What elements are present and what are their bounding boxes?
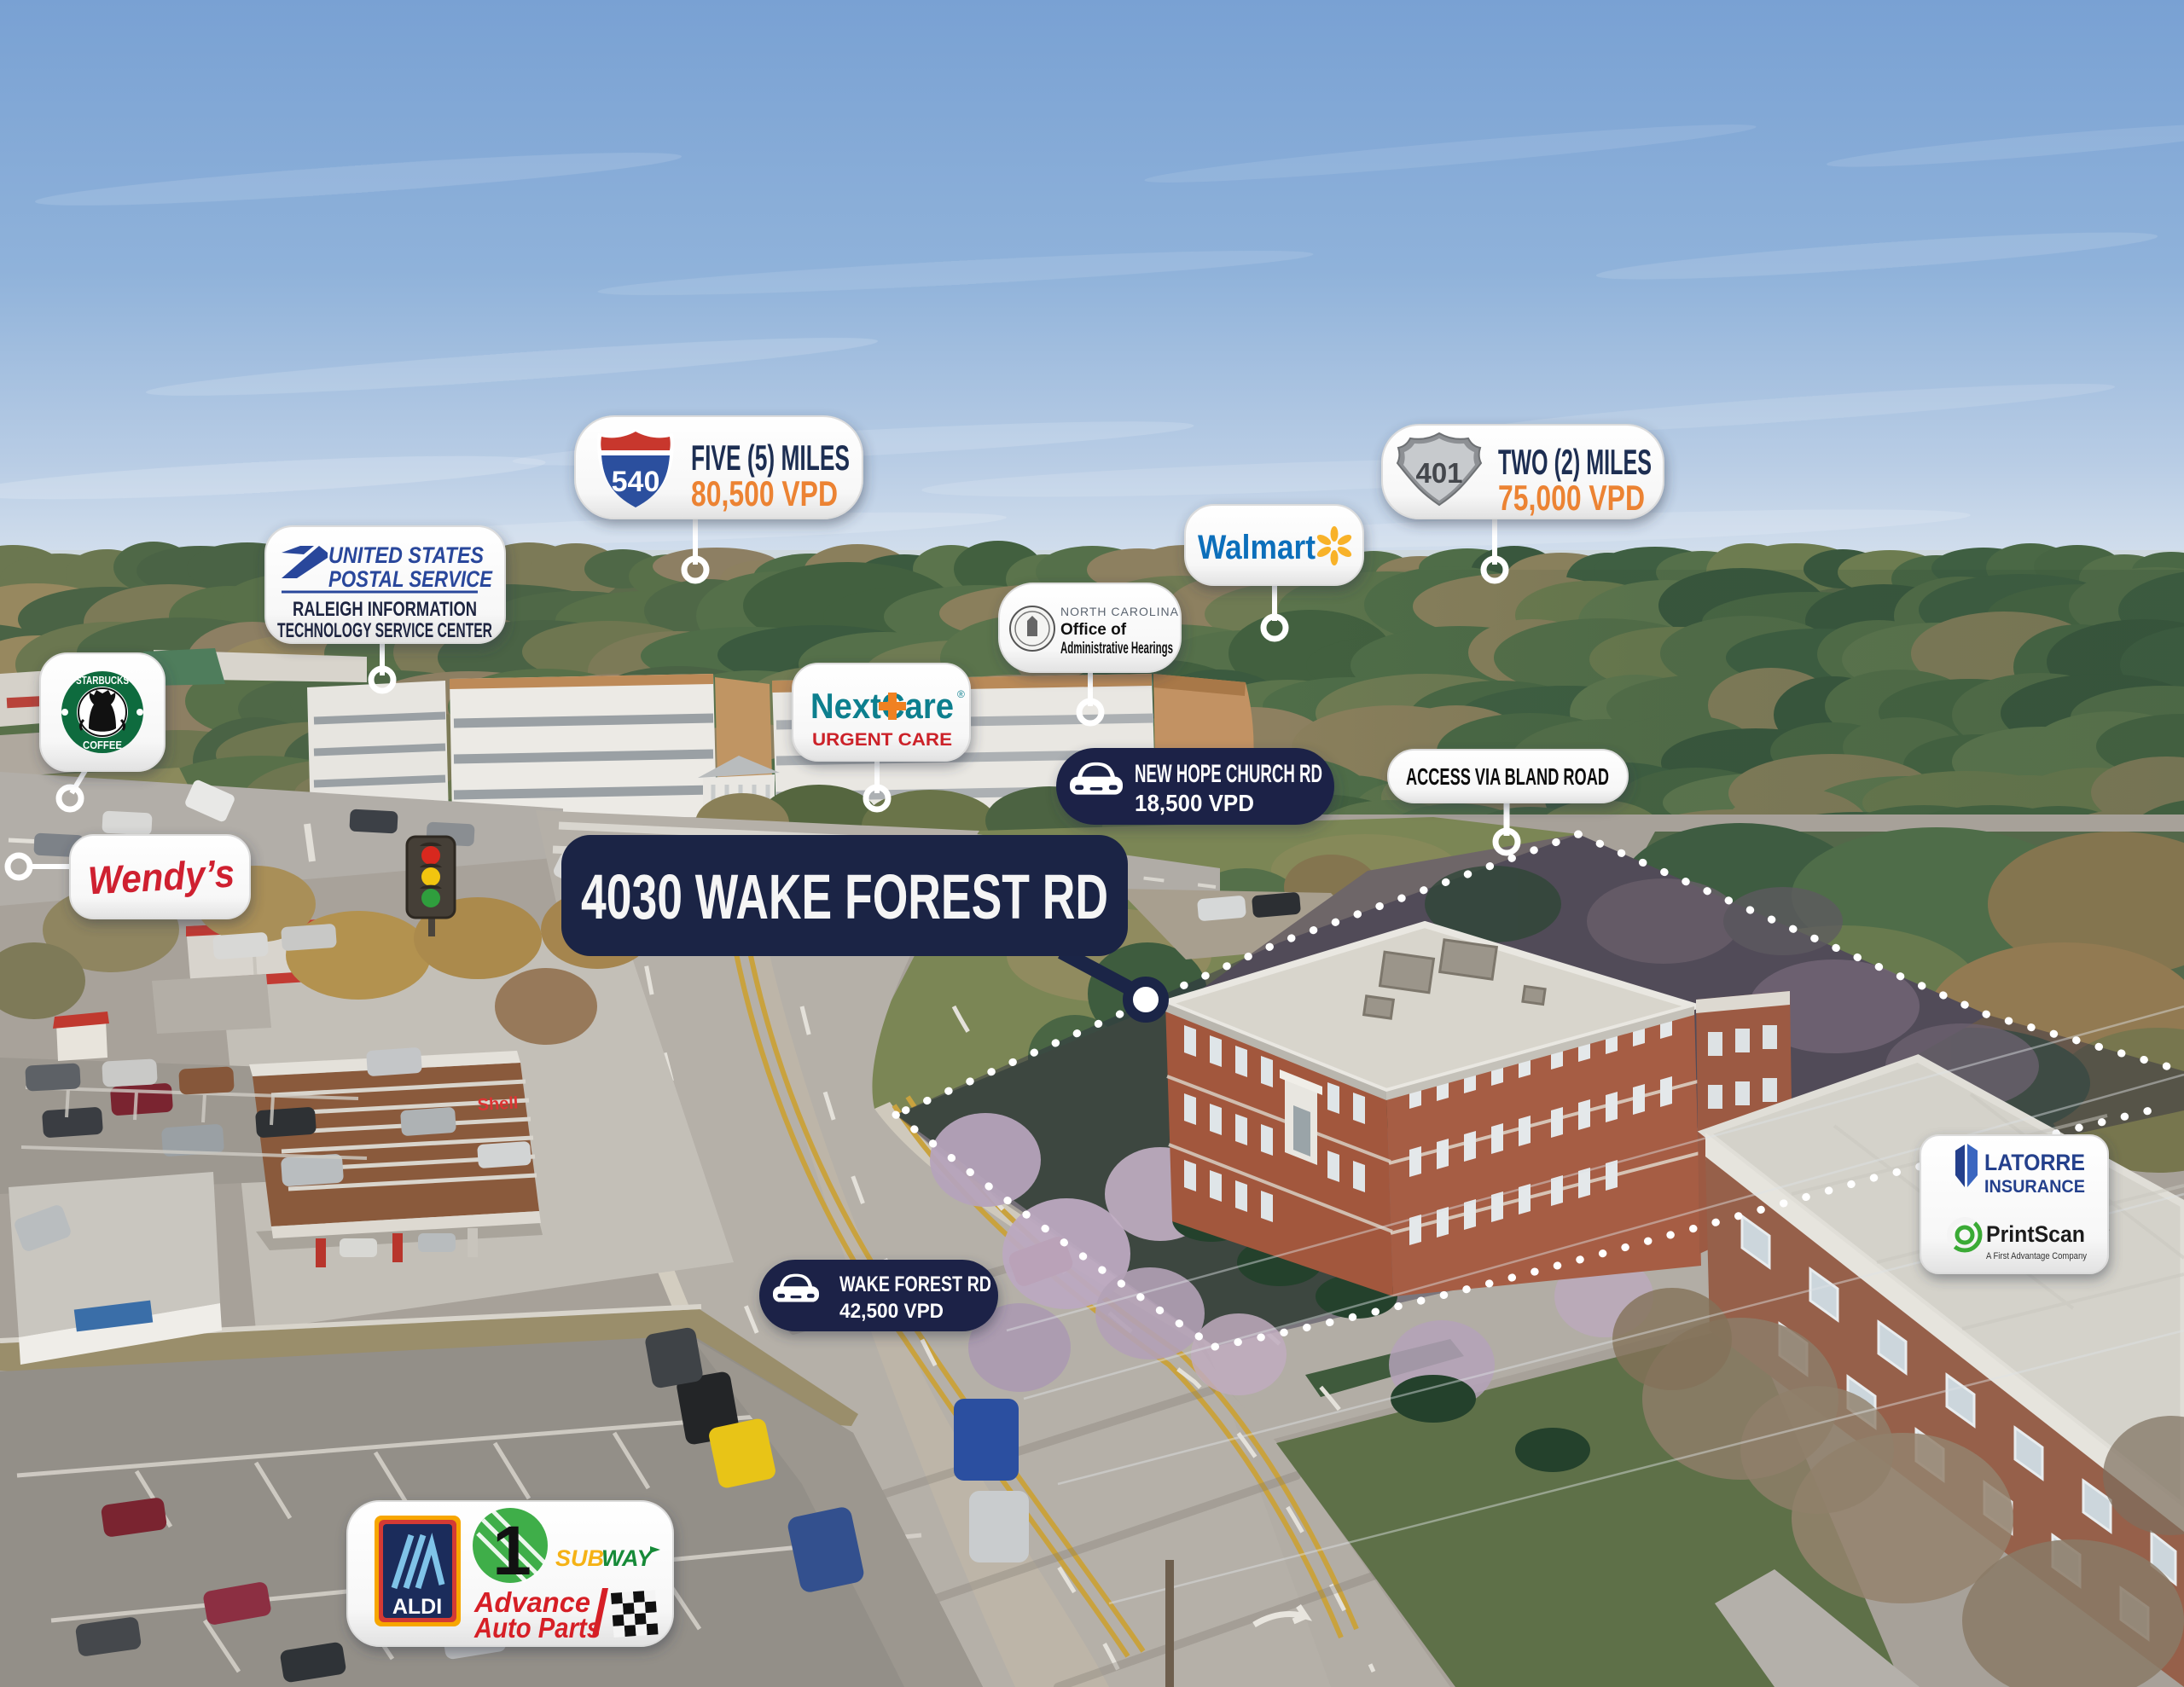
- svg-text:Shell: Shell: [477, 1094, 519, 1115]
- svg-text:42,500 VPD: 42,500 VPD: [839, 1300, 944, 1323]
- svg-text:PrintScan: PrintScan: [1986, 1221, 2085, 1247]
- svg-text:®: ®: [957, 688, 965, 700]
- svg-text:RALEIGH INFORMATION: RALEIGH INFORMATION: [293, 598, 477, 621]
- svg-text:Office of: Office of: [1060, 621, 1127, 639]
- svg-text:540: 540: [612, 466, 660, 498]
- svg-text:POSTAL SERVICE: POSTAL SERVICE: [328, 566, 493, 592]
- svg-text:ALDI: ALDI: [392, 1595, 442, 1619]
- svg-text:WAY: WAY: [601, 1545, 654, 1571]
- svg-text:FIVE (5) MILES: FIVE (5) MILES: [691, 438, 850, 478]
- svg-text:Wendy’s: Wendy’s: [87, 850, 235, 902]
- svg-text:NORTH CAROLINA: NORTH CAROLINA: [1060, 605, 1179, 618]
- svg-text:COFFEE: COFFEE: [83, 739, 122, 751]
- svg-text:4030 WAKE FOREST RD: 4030 WAKE FOREST RD: [581, 861, 1108, 932]
- svg-text:Walmart: Walmart: [1198, 529, 1316, 566]
- svg-text:A First Advantage Company: A First Advantage Company: [1986, 1251, 2087, 1261]
- svg-text:80,500 VPD: 80,500 VPD: [691, 473, 838, 513]
- svg-text:SUB: SUB: [555, 1545, 604, 1571]
- svg-text:LATORRE: LATORRE: [1984, 1150, 2085, 1175]
- svg-text:75,000 VPD: 75,000 VPD: [1498, 478, 1645, 518]
- svg-text:TECHNOLOGY SERVICE CENTER: TECHNOLOGY SERVICE CENTER: [277, 619, 492, 642]
- svg-text:WAKE FOREST RD: WAKE FOREST RD: [839, 1272, 991, 1296]
- svg-text:401: 401: [1415, 457, 1462, 489]
- svg-text:STARBUCKS: STARBUCKS: [76, 674, 129, 687]
- svg-text:Administrative Hearings: Administrative Hearings: [1060, 640, 1173, 658]
- svg-text:NEW HOPE CHURCH RD: NEW HOPE CHURCH RD: [1135, 760, 1322, 788]
- svg-text:URGENT CARE: URGENT CARE: [812, 730, 952, 750]
- svg-text:18,500 VPD: 18,500 VPD: [1135, 790, 1254, 816]
- svg-text:TWO (2) MILES: TWO (2) MILES: [1498, 442, 1652, 482]
- svg-text:INSURANCE: INSURANCE: [1984, 1177, 2085, 1197]
- svg-text:1: 1: [492, 1512, 531, 1590]
- svg-text:UNITED STATES: UNITED STATES: [328, 542, 484, 568]
- svg-text:ACCESS VIA BLAND ROAD: ACCESS VIA BLAND ROAD: [1406, 763, 1609, 790]
- svg-text:Auto Parts: Auto Parts: [473, 1612, 601, 1644]
